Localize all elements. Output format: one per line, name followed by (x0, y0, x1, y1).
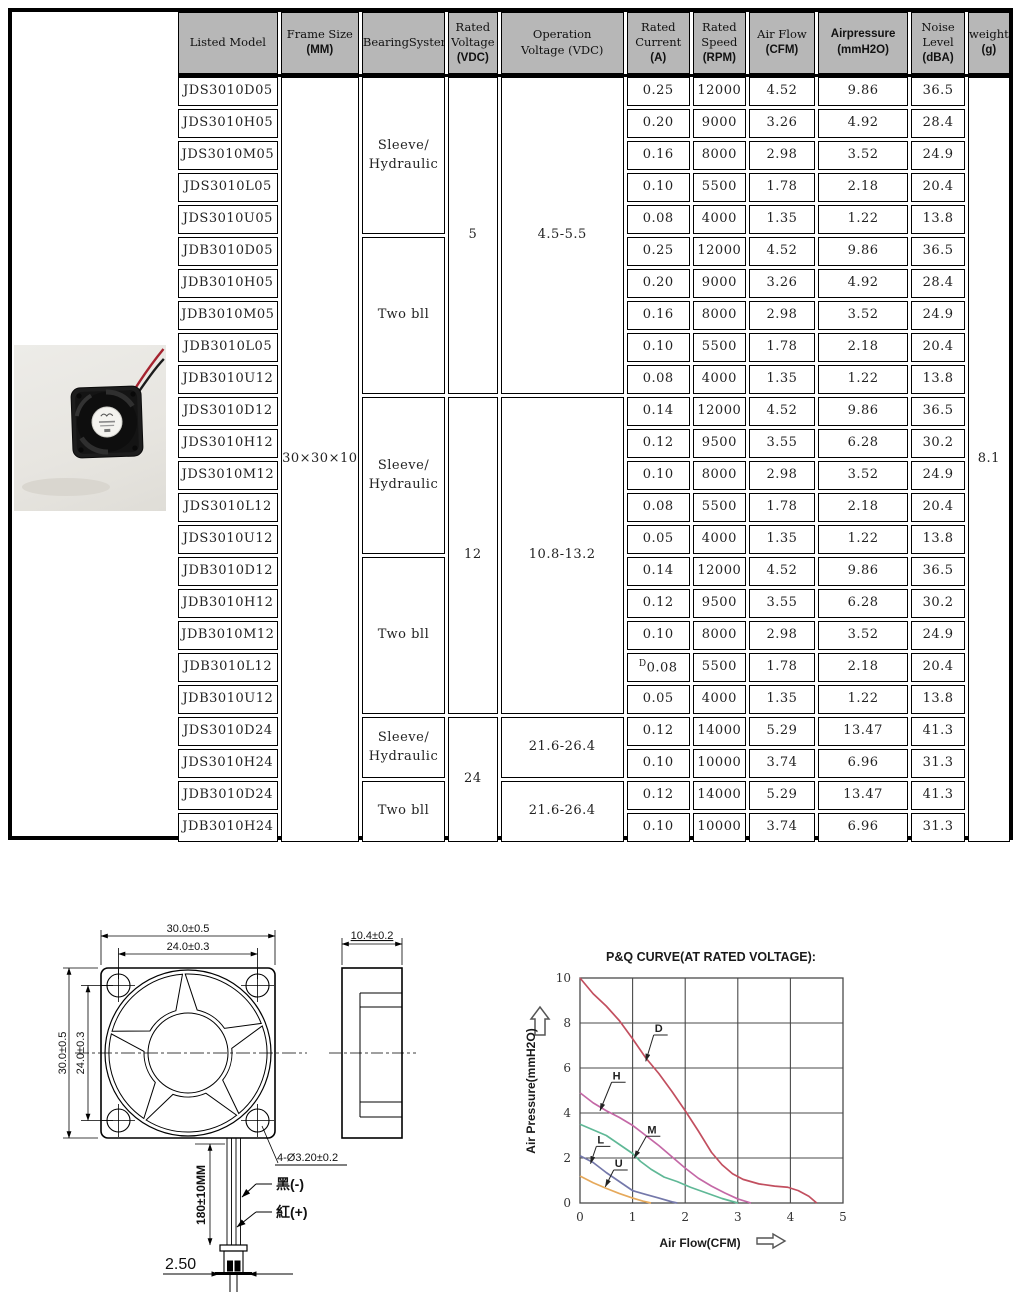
pressure-cell: 3.52 (818, 141, 908, 170)
current-cell: 0.05 (627, 525, 690, 554)
pressure-cell: 3.52 (818, 301, 908, 330)
model-cell: JDB3010U12 (178, 365, 278, 394)
current-cell: 0.20 (627, 269, 690, 298)
operation_voltage-cell: 4.5-5.5 (501, 77, 624, 394)
pressure-cell: 6.28 (818, 429, 908, 458)
current-cell: 0.12 (627, 717, 690, 746)
airflow-cell: 5.29 (749, 717, 815, 746)
model-cell: JDS3010U12 (178, 525, 278, 554)
hole-callout-label: 4-Ø3.20±0.2 (277, 1152, 338, 1164)
rated_voltage-cell: 5 (448, 77, 497, 394)
rated_voltage-cell: 24 (448, 717, 497, 842)
current-cell: 0.25 (627, 237, 690, 266)
pressure-cell: 13.47 (818, 717, 908, 746)
current-cell: 0.08 (627, 205, 690, 234)
bearing-cell: Two bll (362, 237, 445, 394)
pq-curve-chart: P&Q CURVE(AT RATED VOLTAGE): 01234502468… (495, 935, 935, 1285)
svg-text:0: 0 (576, 1210, 584, 1224)
noise-cell: 31.3 (911, 813, 964, 842)
svg-text:H: H (613, 1070, 621, 1082)
model-cell: JDS3010H24 (178, 749, 278, 778)
current-cell: 0.12 (627, 781, 690, 810)
weight-cell: 8.1 (968, 77, 1010, 842)
speed-cell: 8000 (693, 141, 746, 170)
model-cell: JDB3010U12 (178, 685, 278, 714)
pressure-cell: 3.52 (818, 621, 908, 650)
fan-front-view (75, 968, 307, 1138)
pressure-cell: 6.28 (818, 589, 908, 618)
current-cell: 0.10 (627, 333, 690, 362)
speed-cell: 9500 (693, 589, 746, 618)
pressure-cell: 9.86 (818, 557, 908, 586)
pressure-cell: 2.18 (818, 653, 908, 682)
noise-cell: 13.8 (911, 205, 964, 234)
speed-cell: 8000 (693, 621, 746, 650)
airflow-cell: 5.29 (749, 781, 815, 810)
column-header-noise: NoiseLevel(dBA) (911, 12, 964, 74)
noise-cell: 24.9 (911, 301, 964, 330)
datasheet-page: Listed ModelFrame Size(MM)BearingSystemR… (0, 0, 1021, 1304)
airflow-cell: 2.98 (749, 301, 815, 330)
speed-cell: 12000 (693, 237, 746, 266)
noise-cell: 24.9 (911, 621, 964, 650)
frame-cell: 30×30×10 (281, 77, 359, 842)
wire-label-leaders (237, 1184, 272, 1227)
svg-text:D: D (655, 1023, 663, 1035)
noise-cell: 13.8 (911, 685, 964, 714)
speed-cell: 4000 (693, 365, 746, 394)
model-cell: JDS3010L12 (178, 493, 278, 522)
svg-text:U: U (615, 1158, 623, 1170)
noise-cell: 31.3 (911, 749, 964, 778)
current-cell: D0.08 (627, 653, 690, 682)
speed-cell: 12000 (693, 397, 746, 426)
x-axis-label: Air Flow(CFM) (659, 1236, 740, 1250)
model-cell: JDB3010L05 (178, 333, 278, 362)
airflow-cell: 1.35 (749, 525, 815, 554)
speed-cell: 14000 (693, 717, 746, 746)
model-cell: JDS3010L05 (178, 173, 278, 202)
pressure-cell: 6.96 (818, 749, 908, 778)
current-cell: 0.16 (627, 141, 690, 170)
column-header-model: Listed Model (178, 12, 278, 74)
model-cell: JDB3010D12 (178, 557, 278, 586)
current-cell: 0.14 (627, 557, 690, 586)
noise-cell: 28.4 (911, 109, 964, 138)
column-header-speed: RatedSpeed(RPM) (693, 12, 746, 74)
bearing-cell: Sleeve/Hydraulic (362, 717, 445, 778)
column-header-frame: Frame Size(MM) (281, 12, 359, 74)
speed-cell: 4000 (693, 685, 746, 714)
noise-cell: 41.3 (911, 781, 964, 810)
bearing-cell: Two bll (362, 557, 445, 714)
dimension-drawing: 30.0±0.5 24.0±0.3 30.0±0.5 24.0±0.3 1 (25, 895, 475, 1304)
svg-text:4: 4 (787, 1210, 795, 1224)
model-cell: JDB3010H05 (178, 269, 278, 298)
model-cell: JDS3010M12 (178, 461, 278, 490)
noise-cell: 20.4 (911, 653, 964, 682)
noise-cell: 20.4 (911, 173, 964, 202)
black-wire-label: 黑(-) (276, 1176, 304, 1192)
column-header-operation_voltage: OperationVoltage (VDC) (501, 12, 624, 74)
column-header-current: RatedCurrent(A) (627, 12, 690, 74)
airflow-cell: 3.26 (749, 269, 815, 298)
model-cell: JDB3010L12 (178, 653, 278, 682)
pressure-cell: 1.22 (818, 525, 908, 554)
current-cell: 0.25 (627, 77, 690, 106)
airflow-cell: 2.98 (749, 621, 815, 650)
pressure-cell: 9.86 (818, 77, 908, 106)
svg-text:2: 2 (681, 1210, 689, 1224)
dim-depth-label: 10.4±0.2 (351, 930, 394, 942)
speed-cell: 5500 (693, 493, 746, 522)
airflow-cell: 3.55 (749, 589, 815, 618)
airflow-cell: 1.35 (749, 205, 815, 234)
airflow-cell: 4.52 (749, 237, 815, 266)
svg-text:M: M (647, 1124, 656, 1136)
speed-cell: 5500 (693, 173, 746, 202)
product-photo (14, 345, 166, 511)
svg-text:8: 8 (563, 1016, 571, 1030)
pressure-cell: 3.52 (818, 461, 908, 490)
model-cell: JDS3010M05 (178, 141, 278, 170)
airflow-cell: 3.74 (749, 813, 815, 842)
speed-cell: 9000 (693, 269, 746, 298)
airflow-cell: 1.78 (749, 653, 815, 682)
table-row: JDS3010D0530×30×10Sleeve/Hydraulic54.5-5… (178, 77, 1010, 106)
current-cell: 0.10 (627, 749, 690, 778)
column-header-weight: weight(g) (968, 12, 1010, 74)
operation_voltage-cell: 21.6-26.4 (501, 717, 624, 778)
svg-text:5: 5 (839, 1210, 847, 1224)
noise-cell: 28.4 (911, 269, 964, 298)
noise-cell: 20.4 (911, 333, 964, 362)
noise-cell: 20.4 (911, 493, 964, 522)
model-cell: JDS3010D05 (178, 77, 278, 106)
column-header-bearing: BearingSystem (362, 12, 445, 74)
pressure-cell: 9.86 (818, 237, 908, 266)
noise-cell: 24.9 (911, 461, 964, 490)
current-cell: 0.14 (627, 397, 690, 426)
current-cell: 0.08 (627, 493, 690, 522)
right-arrow-icon (757, 1234, 785, 1248)
svg-text:0: 0 (563, 1196, 571, 1210)
speed-cell: 4000 (693, 525, 746, 554)
model-cell: JDB3010M05 (178, 301, 278, 330)
current-cell: 0.10 (627, 173, 690, 202)
speed-cell: 10000 (693, 749, 746, 778)
airflow-cell: 4.52 (749, 557, 815, 586)
airflow-cell: 1.35 (749, 685, 815, 714)
airflow-cell: 1.78 (749, 173, 815, 202)
speed-cell: 12000 (693, 557, 746, 586)
fan-photo-graphic (14, 345, 166, 511)
svg-text:10: 10 (556, 971, 571, 985)
speed-cell: 14000 (693, 781, 746, 810)
curve-labels: DHMLU (591, 1023, 668, 1187)
red-wire-label: 紅(+) (276, 1204, 308, 1220)
bearing-cell: Sleeve/Hydraulic (362, 397, 445, 554)
airflow-cell: 1.35 (749, 365, 815, 394)
speed-cell: 10000 (693, 813, 746, 842)
current-cell: 0.10 (627, 621, 690, 650)
header-divider (178, 74, 1009, 77)
model-cell: JDS3010D12 (178, 397, 278, 426)
pressure-cell: 1.22 (818, 685, 908, 714)
pressure-cell: 9.86 (818, 397, 908, 426)
curve-U (580, 1176, 651, 1203)
model-cell: JDB3010D05 (178, 237, 278, 266)
noise-cell: 24.9 (911, 141, 964, 170)
rated_voltage-cell: 12 (448, 397, 497, 714)
connector-pitch-label: 2.50 (165, 1256, 196, 1273)
model-cell: JDS3010U05 (178, 205, 278, 234)
airflow-cell: 4.52 (749, 397, 815, 426)
lead-wires (215, 1138, 252, 1292)
airflow-cell: 4.52 (749, 77, 815, 106)
svg-text:2: 2 (563, 1151, 571, 1165)
bearing-cell: Sleeve/Hydraulic (362, 77, 445, 234)
dim-height-label: 30.0±0.5 (57, 1032, 69, 1075)
noise-cell: 36.5 (911, 77, 964, 106)
model-cell: JDB3010M12 (178, 621, 278, 650)
noise-cell: 41.3 (911, 717, 964, 746)
fan-side-view (329, 938, 416, 1138)
current-cell: 0.16 (627, 301, 690, 330)
pressure-cell: 13.47 (818, 781, 908, 810)
dim-hole-h-label: 24.0±0.3 (167, 941, 210, 953)
current-cell: 0.08 (627, 365, 690, 394)
wire-length-label: 180±10MM (194, 1165, 208, 1225)
current-cell: 0.20 (627, 109, 690, 138)
current-cell: 0.10 (627, 813, 690, 842)
column-header-rated_voltage: RatedVoltage(VDC) (448, 12, 497, 74)
operation_voltage-cell: 10.8-13.2 (501, 397, 624, 714)
speed-cell: 4000 (693, 205, 746, 234)
model-cell: JDS3010D24 (178, 717, 278, 746)
current-cell: 0.12 (627, 589, 690, 618)
pressure-cell: 4.92 (818, 109, 908, 138)
spec-table: Listed ModelFrame Size(MM)BearingSystemR… (175, 9, 1013, 845)
noise-cell: 13.8 (911, 525, 964, 554)
dim-width-label: 30.0±0.5 (167, 923, 210, 935)
pressure-cell: 1.22 (818, 365, 908, 394)
svg-text:3: 3 (734, 1210, 742, 1224)
speed-cell: 8000 (693, 301, 746, 330)
pressure-cell: 1.22 (818, 205, 908, 234)
svg-text:1: 1 (629, 1210, 637, 1224)
dim-hole-v-label: 24.0±0.3 (75, 1032, 87, 1075)
dimension-lines-top (101, 930, 275, 979)
airflow-cell: 3.55 (749, 429, 815, 458)
noise-cell: 30.2 (911, 589, 964, 618)
current-cell: 0.05 (627, 685, 690, 714)
model-cell: JDS3010H12 (178, 429, 278, 458)
pressure-cell: 4.92 (818, 269, 908, 298)
model-cell: JDB3010H12 (178, 589, 278, 618)
speed-cell: 9500 (693, 429, 746, 458)
chart-title: P&Q CURVE(AT RATED VOLTAGE): (606, 950, 816, 964)
svg-text:4: 4 (563, 1106, 571, 1120)
airflow-cell: 2.98 (749, 461, 815, 490)
pressure-cell: 6.96 (818, 813, 908, 842)
noise-cell: 30.2 (911, 429, 964, 458)
noise-cell: 36.5 (911, 397, 964, 426)
airflow-cell: 3.26 (749, 109, 815, 138)
pressure-cell: 2.18 (818, 333, 908, 362)
model-cell: JDB3010H24 (178, 813, 278, 842)
pressure-cell: 2.18 (818, 493, 908, 522)
column-header-airflow: Air Flow(CFM) (749, 12, 815, 74)
airflow-cell: 2.98 (749, 141, 815, 170)
model-cell: JDS3010H05 (178, 109, 278, 138)
operation_voltage-cell: 21.6-26.4 (501, 781, 624, 842)
model-cell: JDB3010D24 (178, 781, 278, 810)
airflow-cell: 1.78 (749, 333, 815, 362)
speed-cell: 8000 (693, 461, 746, 490)
noise-cell: 13.8 (911, 365, 964, 394)
speed-cell: 5500 (693, 653, 746, 682)
airflow-cell: 1.78 (749, 493, 815, 522)
speed-cell: 5500 (693, 333, 746, 362)
speed-cell: 12000 (693, 77, 746, 106)
svg-text:6: 6 (563, 1061, 571, 1075)
noise-cell: 36.5 (911, 557, 964, 586)
column-header-pressure: Airpressure(mmH2O) (818, 12, 908, 74)
speed-cell: 9000 (693, 109, 746, 138)
svg-text:L: L (597, 1134, 604, 1146)
pressure-cell: 2.18 (818, 173, 908, 202)
current-cell: 0.10 (627, 461, 690, 490)
current-cell: 0.12 (627, 429, 690, 458)
noise-cell: 36.5 (911, 237, 964, 266)
bearing-cell: Two bll (362, 781, 445, 842)
y-axis-label: Air Pressure(mmH2O) (524, 1028, 538, 1153)
airflow-cell: 3.74 (749, 749, 815, 778)
